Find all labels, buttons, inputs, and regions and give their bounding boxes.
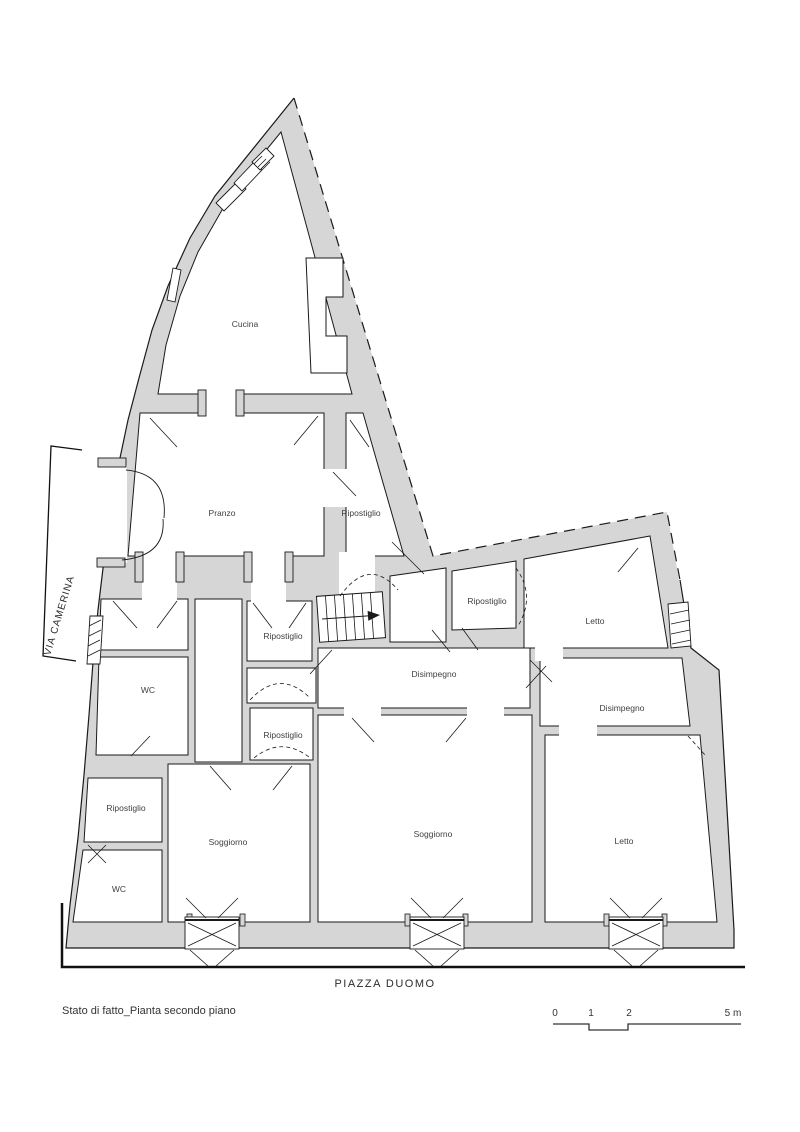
room-label-ripostiglio-ovest: Ripostiglio [106,803,145,813]
room-label-ripostiglio-centro-nord: Ripostiglio [263,631,302,641]
room-label-disimpegno-centro: Disimpegno [412,669,457,679]
scale-bar-line [553,1024,741,1030]
hall-west [195,599,242,762]
room-label-disimpegno-est: Disimpegno [600,703,645,713]
room-label-wc-nord: WC [141,685,155,695]
room-label-letto-nord: Letto [586,616,605,626]
room-disimpegno-est [540,658,690,726]
scale-tick-1: 1 [588,1008,594,1019]
room-label-wc-sud: WC [112,884,126,894]
window-left-wall [87,616,103,664]
scale-tick-5m: 5 m [725,1008,742,1019]
room-label-soggiorno-centro: Soggiorno [414,829,453,839]
floor-plan-canvas: Cucina Pranzo Ripostiglio Ripostiglio Le… [0,0,800,1132]
street-label-via-camerina: VIA CAMERINA [42,574,77,657]
room-label-ripostiglio-centro-sud: Ripostiglio [263,730,302,740]
drawing-title: Stato di fatto_Pianta secondo piano [62,1005,236,1017]
scale-tick-0: 0 [552,1008,558,1019]
window-right-wall [668,602,691,648]
room-soggiorno-centro [318,715,532,922]
hall-center [247,668,316,703]
floor-plan-drawing: Cucina Pranzo Ripostiglio Ripostiglio Le… [0,0,800,1132]
room-label-ripostiglio-pranzo: Ripostiglio [341,508,380,518]
room-letto-sud [545,735,717,922]
room-wc-nord [96,657,188,755]
scale-bar: 0 1 2 5 m [552,1008,741,1030]
room-label-cucina: Cucina [232,319,259,329]
street-label-piazza-duomo: PIAZZA DUOMO [334,978,435,990]
staircase [316,592,385,642]
hall-nord [390,568,446,642]
scale-tick-2: 2 [626,1008,632,1019]
via-camerina-street-line [43,446,82,661]
room-label-pranzo: Pranzo [209,508,236,518]
room-label-letto-sud: Letto [615,836,634,846]
room-label-soggiorno-ovest: Soggiorno [209,837,248,847]
room-anteroom [99,599,188,650]
room-label-ripostiglio-nord: Ripostiglio [467,596,506,606]
